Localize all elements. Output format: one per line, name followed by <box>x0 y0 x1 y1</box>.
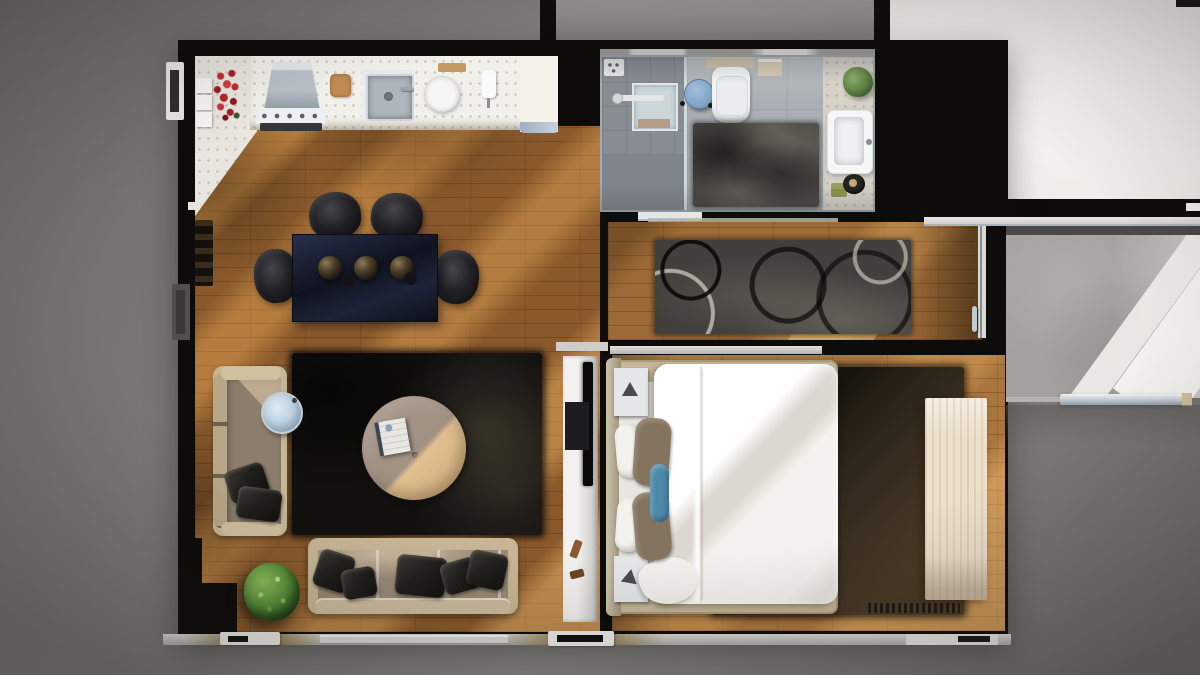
hallway <box>608 222 982 340</box>
bottom-sofa <box>308 538 518 614</box>
round-leather-ottoman <box>362 396 466 500</box>
bathroom-shading <box>600 55 875 212</box>
wardrobe <box>925 398 987 600</box>
bathroom <box>600 55 875 212</box>
balcony-door-gap <box>980 224 982 338</box>
left-vent-slot <box>176 290 185 334</box>
sink-drain <box>384 92 393 101</box>
tripod-lamp <box>621 568 639 585</box>
sofa-backrest <box>316 598 510 614</box>
balcony-concrete-floor <box>1006 235 1200 398</box>
balcony-lintel <box>924 217 1200 226</box>
media-box <box>565 402 589 450</box>
range-hood <box>264 62 320 110</box>
oven-front <box>260 123 322 131</box>
cooktop <box>256 108 326 124</box>
sofa-arm-cushion <box>221 366 281 380</box>
left-sofa <box>213 366 287 536</box>
black-throw-pillow <box>465 548 510 591</box>
cutting-board <box>330 74 351 97</box>
sofa-arm-cushion <box>221 522 281 536</box>
left-threshold <box>188 202 200 210</box>
door-handle <box>972 306 977 332</box>
serving-bowl <box>354 256 378 280</box>
blue-bolster-pillow <box>650 464 669 522</box>
kitchen-end-cabinet <box>520 56 558 132</box>
ottoman-button <box>412 452 418 458</box>
runner-rug <box>655 240 911 334</box>
small-bowl <box>404 272 417 285</box>
wine-rack <box>195 220 213 286</box>
kitchen-shelf-box <box>196 78 212 93</box>
black-throw-pillow <box>394 553 448 598</box>
wall-section-bottom-left-step <box>195 583 237 637</box>
neighbor-room-floor <box>556 0 874 40</box>
sofa-backrest <box>213 374 228 528</box>
bottom-window-glass <box>228 636 248 642</box>
bottom-window-glass <box>958 636 990 642</box>
potted-plant <box>244 563 300 621</box>
balcony-railing-left <box>1006 397 1060 402</box>
tripod-lamp <box>622 382 638 396</box>
apartment-render-stage <box>0 0 1200 675</box>
paper-towel-holder <box>482 70 496 98</box>
white-room-notch <box>1186 203 1200 211</box>
serving-bowl <box>318 256 342 280</box>
white-plate <box>424 76 460 112</box>
rose-bouquet <box>211 68 243 122</box>
balcony-drop-shadow <box>1006 405 1200 445</box>
rug-fringe <box>868 603 960 613</box>
white-room-corner-strip <box>1176 0 1200 7</box>
hallway-shadow <box>908 222 982 340</box>
black-throw-pillow <box>235 485 283 523</box>
kitchen-end-cabinet-edge <box>520 122 558 133</box>
roller-blind-bar <box>1006 226 1200 235</box>
kitchen-shelf-box <box>196 112 212 127</box>
black-throw-pillow <box>340 565 379 600</box>
double-bed <box>606 358 838 616</box>
left-window-glass <box>170 70 179 112</box>
bottom-window-glass <box>557 635 603 642</box>
kitchen-shelf-box <box>196 95 212 110</box>
wooden-tray <box>438 63 466 72</box>
open-book <box>374 418 410 457</box>
small-bowl <box>342 274 355 287</box>
nightstand-top <box>614 368 648 416</box>
kitchen-faucet <box>400 87 413 91</box>
paper-towel-rod <box>487 98 490 108</box>
side-table-detail <box>292 398 297 403</box>
balcony-railing <box>1060 394 1186 405</box>
sliding-door-jamb <box>556 342 608 351</box>
sliding-door-track <box>610 346 822 354</box>
bottom-window-sill-long <box>320 635 508 644</box>
